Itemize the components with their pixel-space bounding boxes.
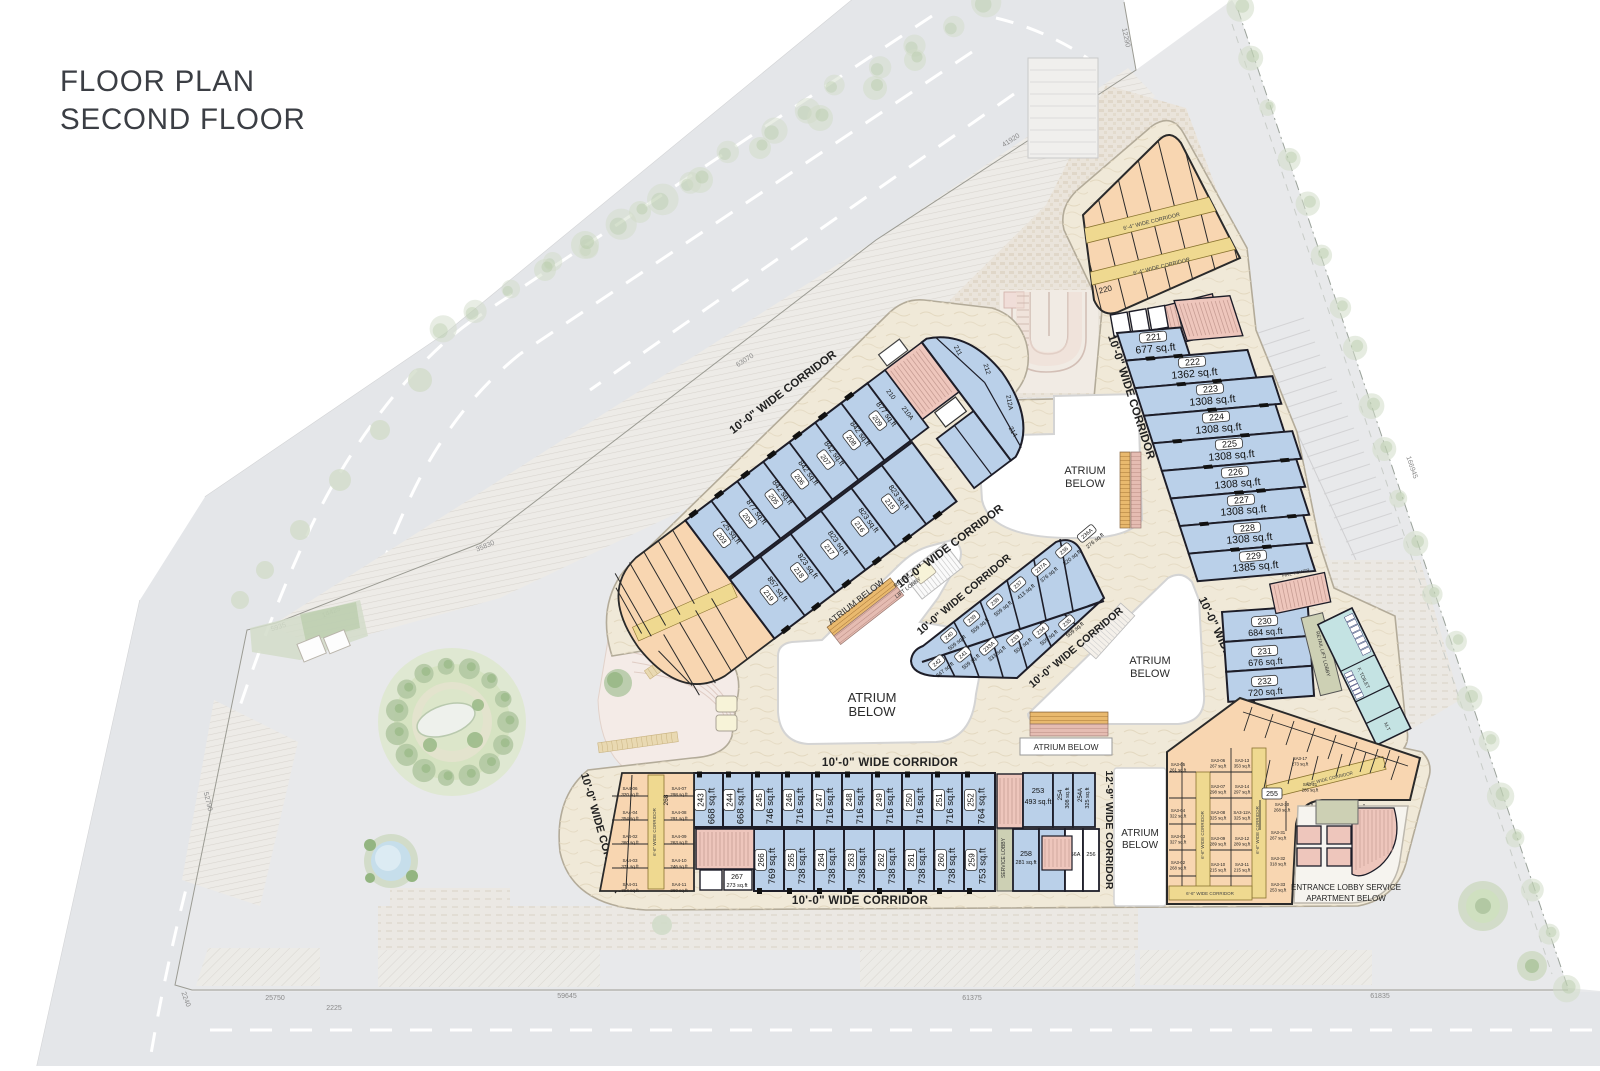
svg-text:SECOND FLOOR: SECOND FLOOR [60, 103, 306, 136]
svg-text:61835: 61835 [1370, 993, 1390, 1000]
svg-text:SA3-12: SA3-12 [1235, 836, 1250, 841]
svg-text:738 sq.ft: 738 sq.ft [887, 847, 898, 884]
svg-text:716 sq.ft: 716 sq.ft [795, 787, 806, 824]
svg-text:286 sq.ft: 286 sq.ft [1302, 788, 1319, 793]
svg-text:SA4-10: SA4-10 [671, 858, 687, 863]
svg-text:322 sq.ft: 322 sq.ft [1170, 814, 1187, 819]
svg-text:SA3-11: SA3-11 [1235, 862, 1250, 867]
svg-text:222: 222 [1185, 356, 1201, 367]
svg-text:SA3-12A: SA3-12A [1233, 810, 1250, 815]
svg-text:59645: 59645 [557, 993, 577, 1000]
svg-text:254: 254 [1057, 789, 1064, 800]
svg-text:SA3-06: SA3-06 [1211, 758, 1226, 763]
svg-text:10'-0" WIDE CORRIDOR: 10'-0" WIDE CORRIDOR [792, 895, 929, 907]
svg-text:2225: 2225 [326, 1005, 342, 1012]
svg-text:266: 266 [757, 853, 766, 867]
svg-text:264: 264 [817, 853, 826, 867]
svg-text:SA3-03: SA3-03 [1171, 834, 1186, 839]
svg-text:6'-6" WIDE CORRIDOR: 6'-6" WIDE CORRIDOR [1186, 891, 1234, 896]
svg-text:SA4-11: SA4-11 [672, 882, 687, 887]
svg-text:SA3-13: SA3-13 [1235, 758, 1250, 763]
svg-text:225: 225 [1222, 438, 1238, 449]
svg-text:SA3-08: SA3-08 [1211, 810, 1226, 815]
svg-text:BELOW: BELOW [1130, 668, 1170, 680]
svg-text:253: 253 [1032, 786, 1045, 795]
svg-text:268: 268 [663, 794, 670, 805]
svg-text:668 sq.ft: 668 sq.ft [707, 787, 718, 824]
svg-text:325 sq.ft: 325 sq.ft [1210, 816, 1227, 821]
svg-text:746 sq.ft: 746 sq.ft [765, 787, 776, 824]
svg-text:716 sq.ft: 716 sq.ft [945, 787, 956, 824]
svg-text:325 sq.ft: 325 sq.ft [1085, 787, 1091, 809]
svg-text:FLOOR PLAN: FLOOR PLAN [60, 65, 255, 98]
svg-text:298 sq.ft: 298 sq.ft [670, 792, 688, 797]
svg-text:738 sq.ft: 738 sq.ft [947, 847, 958, 884]
svg-text:SA3-30: SA3-30 [1275, 802, 1290, 807]
svg-text:SA4-02: SA4-02 [622, 834, 638, 839]
svg-text:SA3-17: SA3-17 [1293, 756, 1308, 761]
svg-text:716 sq.ft: 716 sq.ft [915, 787, 926, 824]
svg-text:267 sq.ft: 267 sq.ft [1270, 836, 1287, 841]
svg-text:256: 256 [1086, 852, 1095, 858]
svg-text:61375: 61375 [962, 995, 982, 1002]
svg-text:SA4-07: SA4-07 [671, 786, 687, 791]
svg-text:668 sq.ft: 668 sq.ft [736, 787, 747, 824]
svg-text:230: 230 [1257, 616, 1272, 627]
svg-text:360 sq.ft: 360 sq.ft [621, 840, 639, 845]
svg-text:226: 226 [1228, 466, 1244, 477]
svg-text:265: 265 [787, 853, 796, 867]
svg-text:244: 244 [726, 793, 735, 807]
svg-text:260: 260 [937, 853, 946, 867]
svg-text:SA4-06: SA4-06 [622, 786, 638, 791]
svg-text:738 sq.ft: 738 sq.ft [797, 847, 808, 884]
svg-text:ATRIUM: ATRIUM [1064, 465, 1105, 477]
svg-text:353 sq.ft: 353 sq.ft [1234, 764, 1251, 769]
svg-text:ATRIUM: ATRIUM [1129, 655, 1170, 667]
svg-text:289 sq.ft: 289 sq.ft [1210, 842, 1227, 847]
svg-text:318 sq.ft: 318 sq.ft [1270, 862, 1287, 867]
svg-text:716 sq.ft: 716 sq.ft [825, 787, 836, 824]
svg-text:261: 261 [907, 853, 916, 867]
svg-text:SA4-04: SA4-04 [622, 810, 638, 815]
svg-text:259: 259 [968, 853, 977, 867]
svg-text:231: 231 [1257, 646, 1272, 657]
svg-text:APARTMENT BELOW: APARTMENT BELOW [1306, 894, 1386, 903]
svg-text:248: 248 [845, 793, 854, 807]
svg-text:SA3-10: SA3-10 [1211, 862, 1226, 867]
svg-text:BELOW: BELOW [1122, 840, 1159, 851]
svg-text:320 sq.ft: 320 sq.ft [621, 792, 639, 797]
svg-text:SA3-04: SA3-04 [1171, 808, 1186, 813]
svg-text:246: 246 [785, 793, 794, 807]
svg-text:769 sq.ft: 769 sq.ft [767, 847, 778, 884]
svg-text:327 sq.ft: 327 sq.ft [1170, 840, 1187, 845]
svg-text:325 sq.ft: 325 sq.ft [1234, 816, 1251, 821]
svg-text:281 sq.ft: 281 sq.ft [1015, 860, 1037, 866]
svg-text:753 sq.ft: 753 sq.ft [978, 847, 989, 884]
svg-text:738 sq.ft: 738 sq.ft [857, 847, 868, 884]
svg-text:SA3-31: SA3-31 [1271, 830, 1286, 835]
svg-text:25750: 25750 [265, 995, 285, 1002]
svg-text:BELOW: BELOW [849, 704, 897, 719]
svg-text:263 sq.ft: 263 sq.ft [670, 840, 688, 845]
svg-text:SA3-07: SA3-07 [1211, 784, 1226, 789]
svg-text:716 sq.ft: 716 sq.ft [855, 787, 866, 824]
svg-text:268 sq.ft: 268 sq.ft [1274, 808, 1291, 813]
svg-text:354 sq.ft: 354 sq.ft [621, 816, 639, 821]
svg-text:716 sq.ft: 716 sq.ft [885, 787, 896, 824]
svg-text:SA3-21: SA3-21 [1303, 782, 1318, 787]
svg-text:262: 262 [877, 853, 886, 867]
svg-text:ATRIUM BELOW: ATRIUM BELOW [1033, 742, 1098, 752]
svg-text:SA3-14: SA3-14 [1235, 784, 1250, 789]
svg-text:249: 249 [875, 793, 884, 807]
svg-text:215 sq.ft: 215 sq.ft [1234, 868, 1251, 873]
svg-text:6'-6" WIDE CORRIDOR: 6'-6" WIDE CORRIDOR [1200, 810, 1205, 858]
svg-text:ATRIUM: ATRIUM [1121, 828, 1159, 839]
svg-text:273 sq.ft: 273 sq.ft [1292, 762, 1309, 767]
svg-text:246 sq.ft: 246 sq.ft [670, 864, 688, 869]
svg-text:245: 245 [755, 793, 764, 807]
svg-text:232: 232 [1257, 676, 1272, 687]
svg-text:243: 243 [697, 793, 706, 807]
svg-text:255: 255 [1266, 791, 1278, 798]
svg-text:289 sq.ft: 289 sq.ft [1234, 842, 1251, 847]
svg-text:SA3-05: SA3-05 [1171, 762, 1186, 767]
svg-text:224: 224 [1209, 411, 1225, 422]
svg-text:ATRIUM: ATRIUM [848, 690, 897, 705]
svg-text:10'-0" WIDE CORRIDOR: 10'-0" WIDE CORRIDOR [822, 757, 959, 769]
svg-text:SA4-09: SA4-09 [671, 834, 687, 839]
svg-text:BELOW: BELOW [1065, 478, 1105, 490]
svg-text:252: 252 [967, 793, 976, 807]
svg-text:12'-9" WIDE CORRIDOR: 12'-9" WIDE CORRIDOR [1103, 771, 1115, 890]
svg-text:764 sq.ft: 764 sq.ft [977, 787, 988, 824]
svg-text:298 sq.ft: 298 sq.ft [1210, 790, 1227, 795]
svg-text:6'-6" WIDE CORRIDOR: 6'-6" WIDE CORRIDOR [1255, 805, 1260, 853]
svg-text:260 sq.ft: 260 sq.ft [670, 888, 688, 893]
svg-text:SA4-08: SA4-08 [671, 810, 687, 815]
svg-text:SA3-09: SA3-09 [1211, 836, 1226, 841]
svg-text:ENTRANCE LOBBY SERVICE: ENTRANCE LOBBY SERVICE [1291, 883, 1401, 892]
svg-text:223: 223 [1203, 383, 1219, 394]
svg-text:221: 221 [1146, 331, 1162, 342]
svg-text:268 sq.ft: 268 sq.ft [1170, 866, 1187, 871]
svg-text:738 sq.ft: 738 sq.ft [827, 847, 838, 884]
svg-text:273 sq.ft: 273 sq.ft [726, 883, 748, 889]
svg-text:738 sq.ft: 738 sq.ft [917, 847, 928, 884]
svg-text:267: 267 [731, 874, 743, 881]
svg-text:SA3-02: SA3-02 [1171, 860, 1186, 865]
svg-text:247: 247 [815, 793, 824, 807]
svg-text:493 sq.ft: 493 sq.ft [1025, 799, 1052, 806]
svg-text:SA4-03: SA4-03 [622, 858, 638, 863]
svg-text:SA3-33: SA3-33 [1271, 882, 1286, 887]
svg-text:254A: 254A [1078, 788, 1084, 802]
svg-text:258: 258 [1020, 851, 1032, 858]
svg-text:250: 250 [905, 793, 914, 807]
svg-text:308 sq.ft: 308 sq.ft [1065, 787, 1071, 809]
svg-text:SA4-01: SA4-01 [622, 882, 638, 887]
svg-text:261 sq.ft: 261 sq.ft [1170, 768, 1187, 773]
svg-text:253 sq.ft: 253 sq.ft [1270, 888, 1287, 893]
svg-text:SERVICE LOBBY: SERVICE LOBBY [1001, 837, 1007, 878]
svg-text:215 sq.ft: 215 sq.ft [1210, 868, 1227, 873]
svg-text:291 sq.ft: 291 sq.ft [670, 816, 688, 821]
svg-text:371 sq.ft: 371 sq.ft [621, 864, 639, 869]
svg-text:6'-6" WIDE CORRIDOR: 6'-6" WIDE CORRIDOR [652, 807, 657, 855]
svg-text:394 sq.ft: 394 sq.ft [621, 888, 639, 893]
svg-text:267 sq.ft: 267 sq.ft [1210, 764, 1227, 769]
svg-text:263: 263 [847, 853, 856, 867]
svg-text:251: 251 [935, 793, 944, 807]
svg-text:297 sq.ft: 297 sq.ft [1234, 790, 1251, 795]
svg-text:SA3-32: SA3-32 [1271, 856, 1286, 861]
